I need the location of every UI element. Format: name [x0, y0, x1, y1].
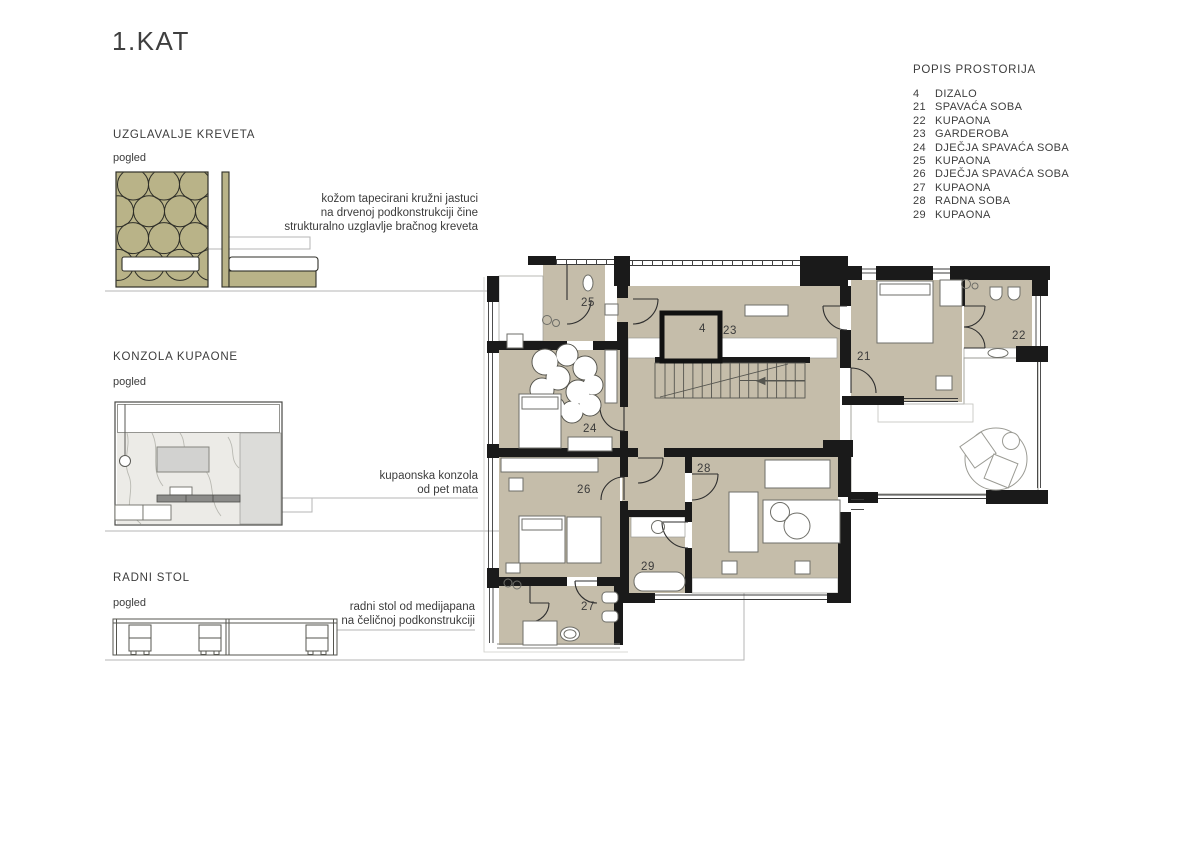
room-label-27: 27 [581, 601, 595, 613]
room-label-26: 26 [577, 484, 591, 496]
desk-drawer [199, 625, 221, 655]
sink-room-22 [990, 287, 1002, 300]
cabinet-left [115, 505, 143, 520]
toilet-room-27 [561, 627, 580, 641]
basin-ledge-room-22 [988, 349, 1008, 358]
console-shelf [157, 495, 240, 502]
bench-room-24 [568, 437, 612, 451]
detail-headboard-drawing [103, 169, 319, 287]
room-label-28: 28 [697, 463, 711, 475]
hall-floor [617, 286, 840, 457]
room-label-22: 22 [1012, 330, 1026, 342]
desk-drawer [129, 625, 151, 655]
room-28-window-strip [692, 578, 838, 593]
bed-room-21 [877, 281, 933, 343]
room-25-shower-area [499, 276, 543, 341]
headboard-side-panel [222, 172, 229, 287]
room-label-24: 24 [583, 423, 597, 435]
stair-landing [628, 338, 837, 358]
mattress-front [122, 257, 199, 271]
detail-desk-drawing [113, 619, 337, 655]
bed-room-26 [519, 516, 565, 563]
closet-room-23 [745, 305, 788, 316]
desk-room-28 [765, 460, 830, 488]
sheet: 1.KAT UZGLAVALJE KREVETA pogled kožom ta… [0, 0, 1200, 848]
pendant-lamp [120, 456, 131, 467]
rug-room-28 [763, 500, 840, 543]
desk-drawer [306, 625, 328, 655]
nightstand-room-26 [509, 478, 523, 491]
shower-room-27 [523, 621, 557, 645]
room-label-23: 23 [723, 325, 737, 337]
wardrobe-room-21 [940, 280, 962, 306]
floor-plan: 25 24 4 23 21 22 26 28 29 27 [484, 256, 1050, 652]
closet-room-26 [501, 458, 598, 472]
nightstand-room-21 [936, 376, 952, 390]
room-label-4: 4 [699, 323, 706, 335]
elevator-shaft [662, 313, 720, 361]
mirror [157, 447, 209, 472]
wardrobe-room-24 [605, 350, 617, 403]
sink-room-27-b [602, 611, 618, 622]
mattress-side [229, 257, 318, 271]
sink-room-22-b [1008, 287, 1020, 300]
cabinet-right [143, 505, 171, 520]
basin [170, 487, 192, 495]
drawing-layer: 25 24 4 23 21 22 26 28 29 27 [0, 0, 1200, 848]
sink-room-25 [605, 304, 618, 315]
console-ceiling-band [118, 405, 280, 433]
daybed-room-28 [729, 492, 758, 552]
bed-room-26-b [567, 517, 601, 563]
bed-base-side [229, 271, 316, 287]
bed-room-24 [519, 394, 561, 448]
toilet-room-25 [583, 275, 593, 291]
room-label-29: 29 [641, 561, 655, 573]
corridor-floor [622, 457, 685, 517]
room-25-floor [543, 264, 605, 341]
room-label-21: 21 [857, 351, 871, 363]
nightstand-room-24 [507, 334, 523, 348]
detail-console-drawing [115, 402, 282, 525]
room-label-25: 25 [581, 297, 595, 309]
side-panel [240, 433, 281, 524]
bathtub-room-29 [634, 572, 685, 591]
sink-room-27 [602, 592, 618, 603]
